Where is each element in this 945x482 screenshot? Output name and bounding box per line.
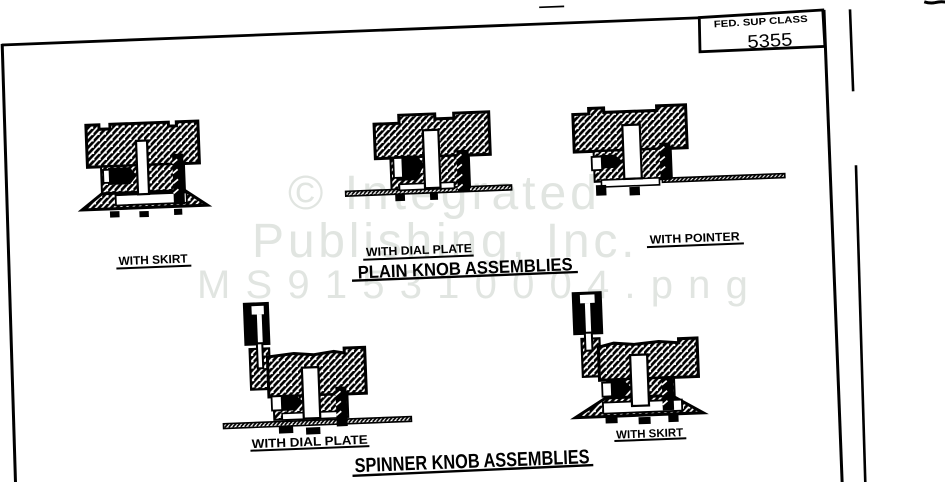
svg-text:5355: 5355 [747,29,793,53]
svg-text:SPINNER KNOB ASSEMBLIES: SPINNER KNOB ASSEMBLIES [354,446,590,477]
